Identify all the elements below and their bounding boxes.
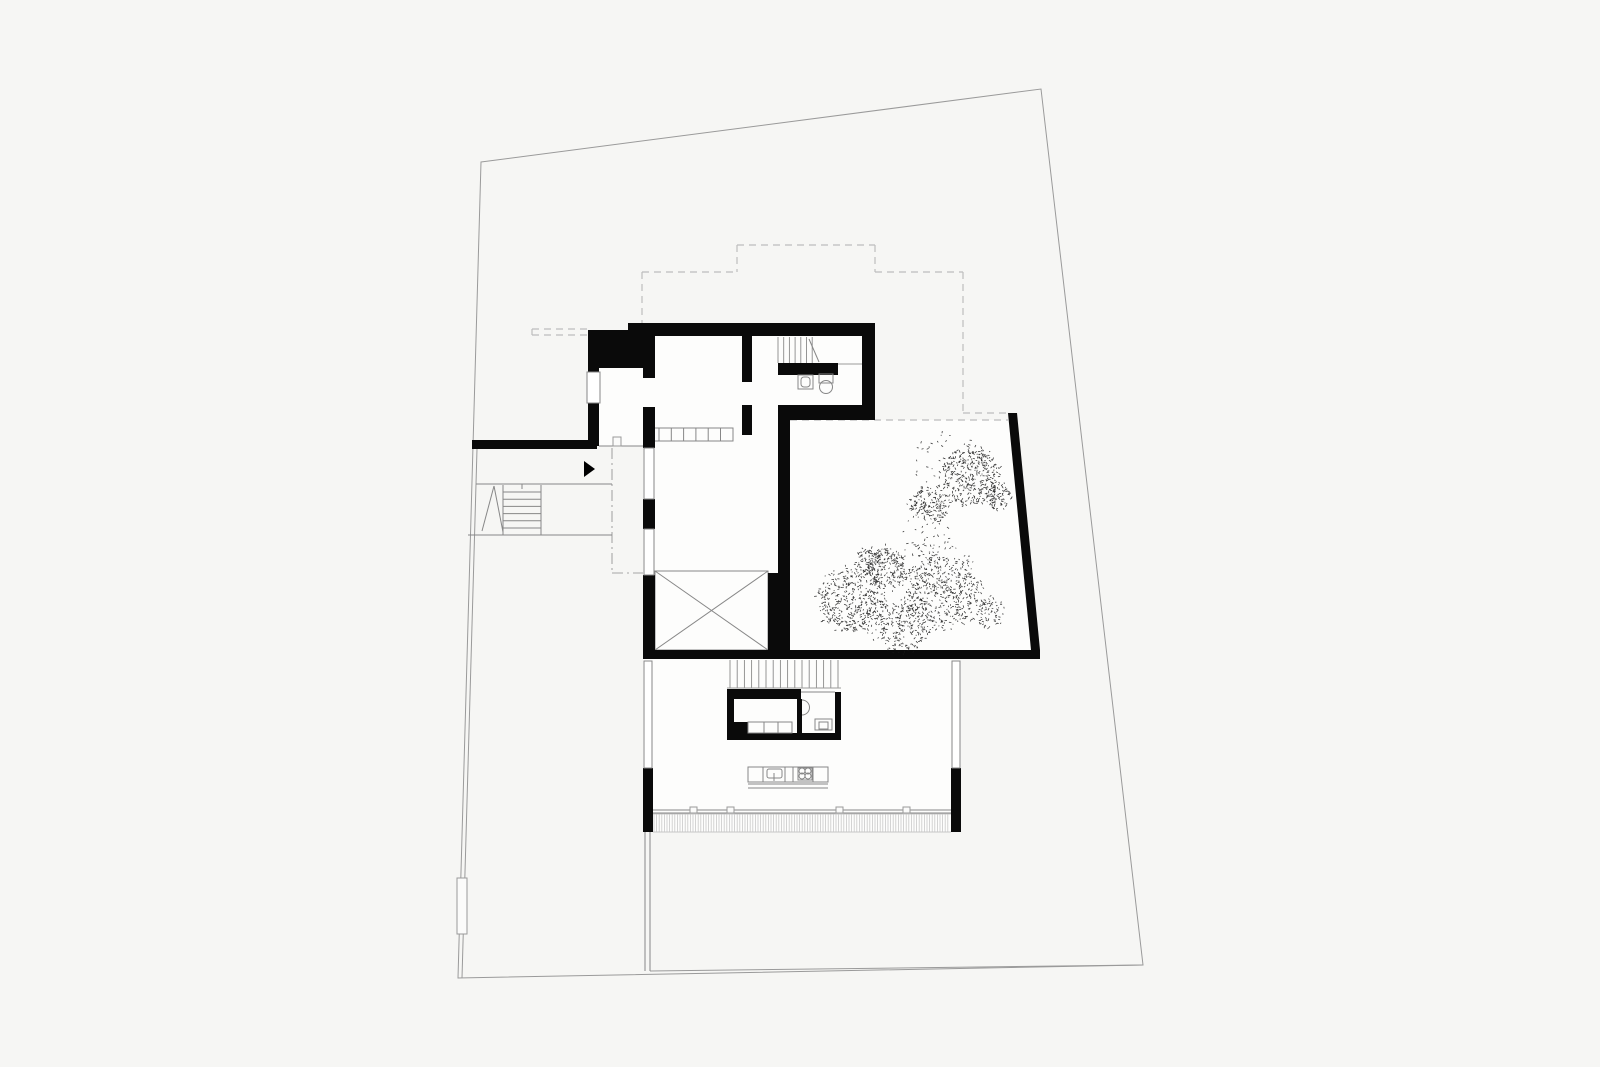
stairhall-wall-upper <box>742 336 752 382</box>
hall-west-wall-a <box>643 368 655 378</box>
utility-top-wall <box>727 689 801 699</box>
floor-plan-canvas <box>0 0 1600 1067</box>
exterior-stair-break-line-a <box>482 486 494 531</box>
wc-east-wall <box>835 692 841 740</box>
utility-sw-block <box>734 722 748 733</box>
window-hall-west-a <box>644 448 654 499</box>
facade-mullion-2 <box>727 807 734 813</box>
entry-arrow <box>584 461 595 477</box>
hall-west-wall-d <box>643 575 655 659</box>
stairhall-wall-lower <box>742 405 752 435</box>
hall-west-wall-b <box>643 407 655 448</box>
utility-divider-wall <box>797 699 802 733</box>
living-east-pier <box>951 768 961 832</box>
window-vestibule-west <box>587 372 600 403</box>
facade-mullion-4 <box>903 807 910 813</box>
utility-west-wall <box>727 699 734 733</box>
exterior-stair-break-line-b <box>494 486 503 532</box>
garden-gate <box>457 878 467 934</box>
void-east-wall <box>768 573 790 659</box>
facade-mullion-1 <box>690 807 697 813</box>
floor-plan-page <box>0 0 1600 1067</box>
facade-mullion-3 <box>836 807 843 813</box>
top-wall <box>628 323 875 336</box>
utility-bottom-wall <box>727 733 841 740</box>
window-hall-west-b <box>644 529 654 575</box>
window-living-east <box>952 661 960 768</box>
entry-threshold <box>613 437 621 446</box>
garden-wall-west <box>472 440 597 449</box>
bath-partition-bar <box>778 363 838 375</box>
south-band-wall <box>643 650 1040 659</box>
courtyard-floor <box>790 420 1039 650</box>
window-living-west <box>644 661 652 768</box>
living-floor <box>643 659 960 832</box>
living-west-pier <box>643 768 653 832</box>
entry-core-wall <box>588 330 655 368</box>
hall-west-wall-c <box>643 499 655 529</box>
upper-south-wall <box>778 405 875 420</box>
